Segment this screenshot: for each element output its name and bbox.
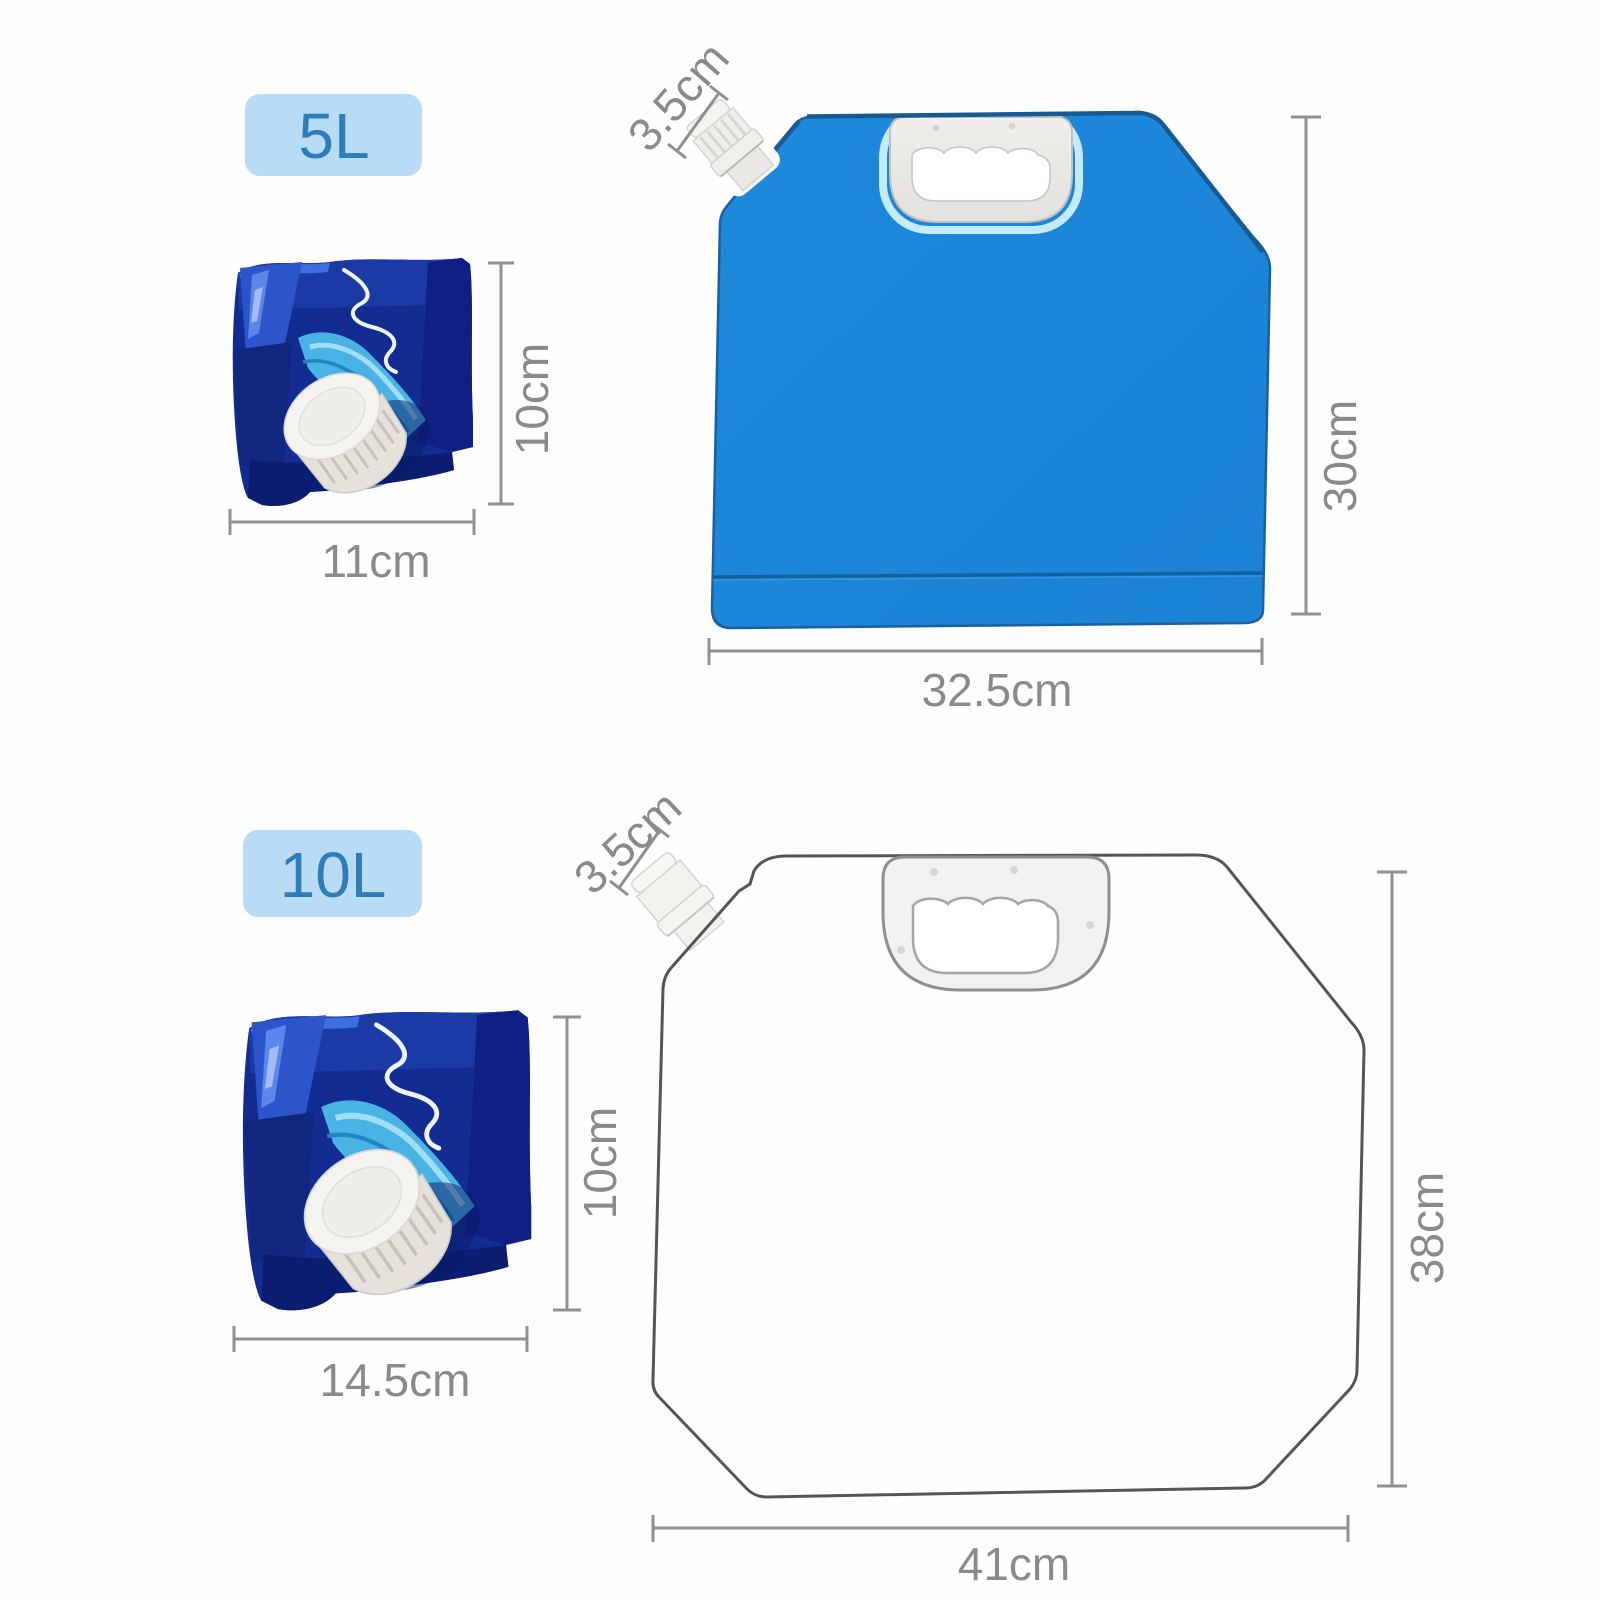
svg-text:5L: 5L <box>298 100 369 172</box>
svg-text:32.5cm: 32.5cm <box>922 664 1073 716</box>
svg-text:41cm: 41cm <box>958 1538 1070 1590</box>
svg-text:38cm: 38cm <box>1401 1172 1453 1284</box>
svg-text:11cm: 11cm <box>321 535 430 587</box>
svg-text:10cm: 10cm <box>574 1107 626 1219</box>
svg-text:14.5cm: 14.5cm <box>320 1354 471 1406</box>
svg-text:10L: 10L <box>280 839 387 911</box>
svg-text:10cm: 10cm <box>506 343 558 455</box>
svg-text:30cm: 30cm <box>1314 400 1366 512</box>
